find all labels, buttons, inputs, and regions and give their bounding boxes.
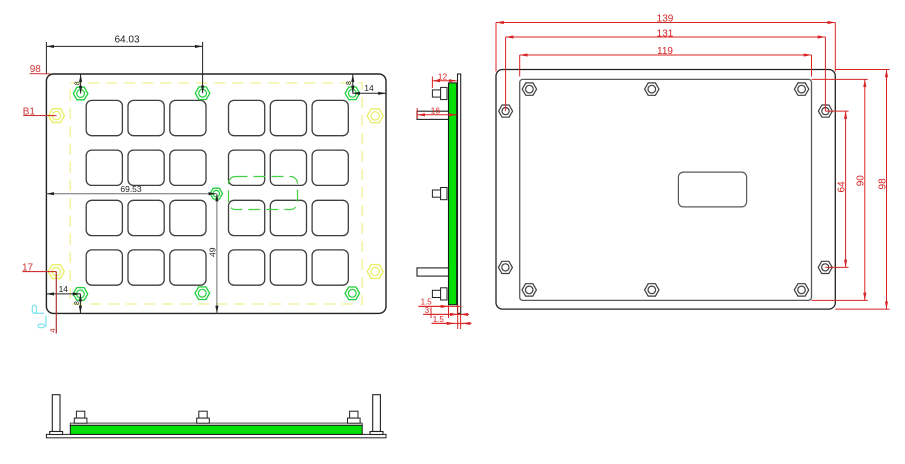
svg-text:4: 4 [48, 329, 57, 333]
svg-text:14: 14 [59, 284, 69, 294]
svg-text:119: 119 [657, 46, 673, 57]
svg-text:131: 131 [657, 28, 674, 39]
svg-text:1.5: 1.5 [433, 315, 445, 324]
svg-text:98: 98 [877, 178, 888, 190]
svg-text:49: 49 [208, 247, 218, 257]
svg-text:3: 3 [425, 306, 430, 315]
svg-text:8: 8 [74, 301, 81, 305]
svg-text:14: 14 [364, 83, 374, 93]
svg-text:8: 8 [346, 81, 353, 85]
svg-text:69.53: 69.53 [120, 184, 142, 194]
svg-text:64.03: 64.03 [114, 34, 139, 45]
svg-text:139: 139 [657, 14, 674, 25]
svg-text:8: 8 [74, 81, 81, 85]
svg-text:64: 64 [836, 181, 847, 193]
svg-text:90: 90 [856, 175, 867, 187]
svg-text:16: 16 [431, 105, 441, 115]
svg-text:12: 12 [438, 71, 448, 81]
